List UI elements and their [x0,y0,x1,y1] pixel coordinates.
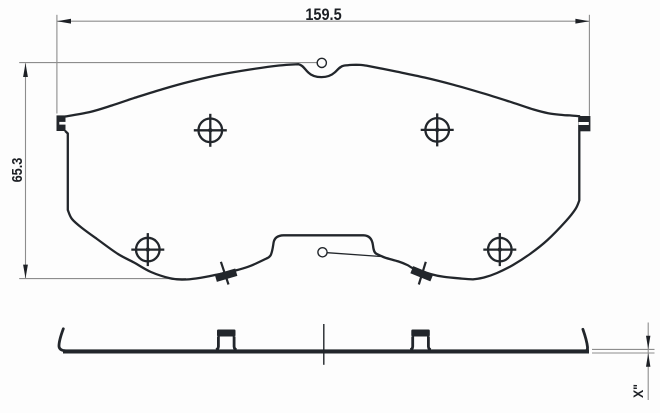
svg-text:65.3: 65.3 [9,157,25,182]
svg-text:159.5: 159.5 [305,6,342,24]
svg-text:X": X" [630,384,646,398]
